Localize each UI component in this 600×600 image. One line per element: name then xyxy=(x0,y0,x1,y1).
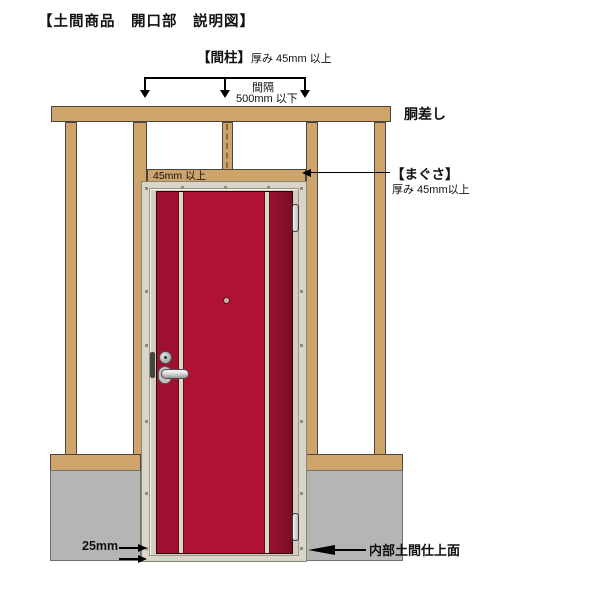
gap-arrow-upper-line xyxy=(119,547,139,549)
stud-arrow-stem-left xyxy=(144,77,146,90)
hinge-bottom xyxy=(292,513,299,541)
lintel-spec: 厚み 45mm以上 xyxy=(392,181,470,197)
strike-plate xyxy=(150,352,155,378)
stud-nail-line xyxy=(226,124,228,168)
screw-icon xyxy=(300,547,303,550)
girder-beam xyxy=(51,106,391,122)
keyhole-icon xyxy=(164,356,167,359)
screw-icon xyxy=(267,186,270,189)
screw-icon xyxy=(300,187,303,190)
left-arrow-icon xyxy=(308,545,335,555)
interior-floor-label: 内部土間仕上面 xyxy=(369,540,460,559)
door-panel-center xyxy=(183,192,267,553)
screw-icon xyxy=(300,290,303,293)
floor-gap-label: 25mm xyxy=(82,539,118,553)
screw-icon xyxy=(300,492,303,495)
girder-label: 胴差し xyxy=(404,104,446,124)
diagram-canvas: 【土間商品 開口部 説明図】 【間柱】厚み 45mm 以上 間隔 500mm 以… xyxy=(0,0,600,600)
diagram-title: 【土間商品 開口部 説明図】 xyxy=(38,10,255,31)
screw-icon xyxy=(145,290,148,293)
screw-icon xyxy=(145,344,148,347)
screw-icon xyxy=(145,187,148,190)
door-lever-handle xyxy=(161,369,189,379)
left-arrow-icon xyxy=(302,169,311,177)
screw-icon xyxy=(181,186,184,189)
door-panel-right xyxy=(269,192,292,553)
screw-icon xyxy=(300,420,303,423)
screw-icon xyxy=(300,344,303,347)
spacing-label-line2: 500mm 以下 xyxy=(236,90,298,106)
screw-icon xyxy=(145,420,148,423)
hinge-top xyxy=(292,204,299,232)
screw-icon xyxy=(145,492,148,495)
stud-spec: 厚み 45mm 以上 xyxy=(251,53,332,65)
right-arrow-icon xyxy=(138,555,147,563)
sill-left xyxy=(50,454,141,471)
stud-arrow-stem-right xyxy=(304,77,306,90)
right-arrow-icon xyxy=(138,544,147,552)
down-arrow-icon xyxy=(140,90,150,98)
stud-annotation: 【間柱】厚み 45mm 以上 xyxy=(197,46,332,66)
lock-cylinder xyxy=(159,351,172,364)
post-left-outer xyxy=(65,122,77,455)
lintel-label: 【まぐさ】 xyxy=(391,163,459,183)
down-arrow-icon xyxy=(220,90,230,98)
floor-arrow-line xyxy=(334,549,366,551)
door-trim-stripe xyxy=(265,192,269,553)
sill-right xyxy=(306,454,403,471)
peephole-icon xyxy=(223,297,230,304)
gap-arrow-lower-line xyxy=(119,558,139,560)
stud-label: 【間柱】 xyxy=(197,50,251,65)
lintel-arrow-line xyxy=(310,172,390,173)
screw-icon xyxy=(224,186,227,189)
stud-arrow-stem-center xyxy=(224,77,226,90)
down-arrow-icon xyxy=(300,90,310,98)
